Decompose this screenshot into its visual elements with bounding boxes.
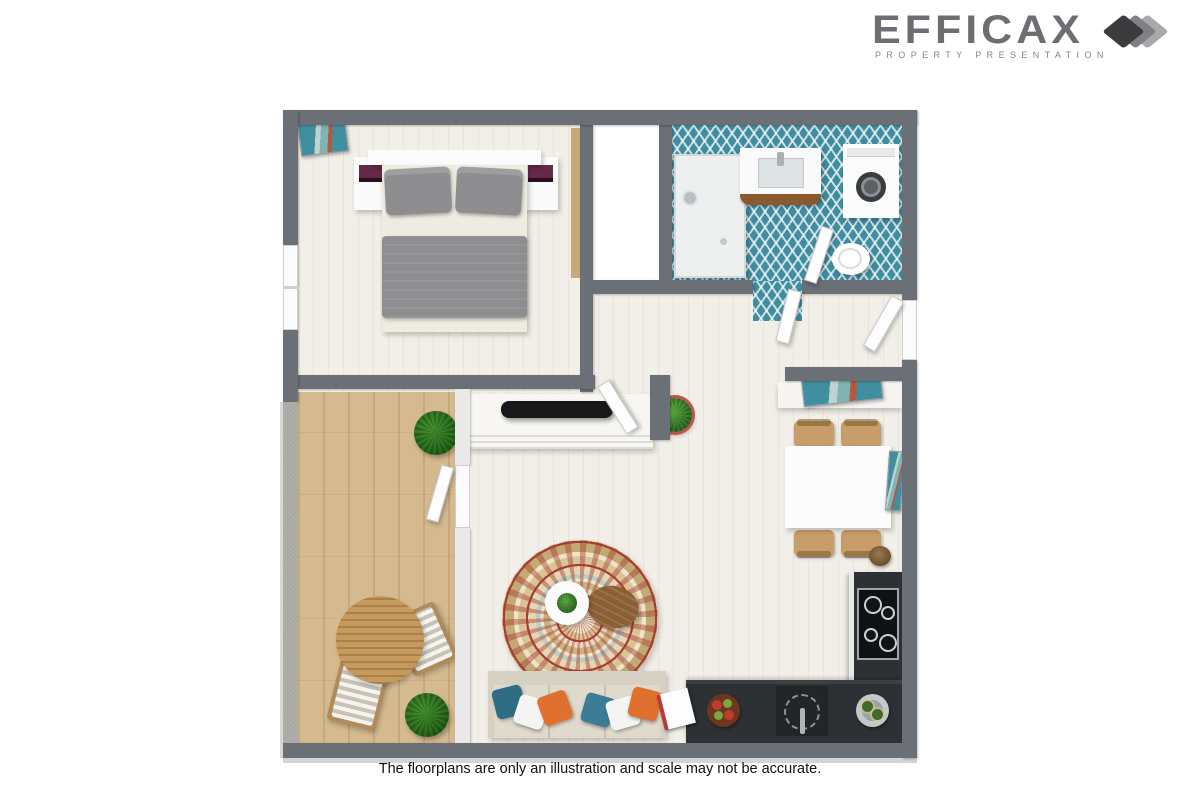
dining-chair xyxy=(794,530,834,556)
vanity-faucet xyxy=(777,152,784,166)
page: { "logo": { "brand": "EFFICAX", "tagline… xyxy=(0,0,1200,800)
bedroom-window xyxy=(283,245,298,330)
bedroom-south-wall xyxy=(298,375,595,389)
balcony-door-frame xyxy=(455,465,470,528)
balcony-living-wall-upper xyxy=(455,389,470,465)
dining-chair xyxy=(794,421,834,447)
fruit xyxy=(723,699,732,708)
balcony-living-wall-lower xyxy=(455,528,470,743)
hall-corner-wall xyxy=(650,375,670,440)
washing-machine xyxy=(843,144,899,218)
sofa xyxy=(488,671,666,738)
nightstand-drawer xyxy=(528,165,553,182)
burner xyxy=(864,596,882,614)
logo: EFFICAX PROPERTY PRESENTATION xyxy=(872,10,1172,68)
logo-tagline: PROPERTY PRESENTATION xyxy=(875,50,1109,60)
bathroom-south-wall-right xyxy=(802,280,902,294)
tv xyxy=(501,401,613,418)
cooktop xyxy=(857,588,899,660)
toilet xyxy=(832,243,870,275)
closet-right-wall xyxy=(659,125,672,280)
bed-duvet xyxy=(382,236,527,318)
closet-floor xyxy=(593,125,659,280)
shower-head-icon xyxy=(684,192,696,204)
bed-pillow-right xyxy=(455,166,523,215)
dining-nook-wall xyxy=(785,367,902,381)
outer-wall-left-balcony xyxy=(283,402,298,758)
burner xyxy=(881,606,895,620)
fruit xyxy=(712,700,722,710)
table-plant xyxy=(557,593,577,613)
dining-chair xyxy=(841,421,881,447)
balcony-table xyxy=(336,596,424,684)
bed-headboard xyxy=(368,150,541,165)
outer-wall-bottom xyxy=(283,743,917,758)
washer-control-panel xyxy=(847,148,895,157)
fruit xyxy=(724,710,734,720)
disclaimer-text: The floorplans are only an illustration … xyxy=(0,761,1200,777)
bottle xyxy=(862,701,873,712)
burner xyxy=(864,628,878,642)
vanity-wood-front xyxy=(740,194,821,205)
layered-sheets-icon xyxy=(1110,10,1172,66)
front-door-opening xyxy=(902,300,917,360)
shower xyxy=(674,154,746,278)
fruit xyxy=(714,711,723,720)
wardrobe-strip xyxy=(571,128,580,278)
bathroom-vanity xyxy=(740,148,821,196)
dining-table xyxy=(785,446,891,528)
nightstand-drawer xyxy=(359,165,384,182)
logo-brand-text: EFFICAX xyxy=(872,8,1084,53)
window-mullion xyxy=(284,286,299,289)
balcony-plant-top xyxy=(414,411,458,455)
toilet-seat xyxy=(838,248,862,269)
bathroom-south-wall-left xyxy=(593,280,753,294)
sink-faucet xyxy=(800,708,805,734)
outer-wall-right-lower xyxy=(902,360,917,758)
balcony-plant-bottom xyxy=(405,693,449,737)
fruit-bowl xyxy=(707,694,740,727)
outer-wall-right-upper xyxy=(902,110,917,300)
floorplan xyxy=(283,110,917,758)
shower-drain xyxy=(720,238,727,245)
brown-pot xyxy=(869,546,891,566)
bottle xyxy=(872,709,883,720)
closet-left-wall xyxy=(580,125,593,392)
burner xyxy=(879,634,897,652)
bed-pillow-left xyxy=(384,166,452,215)
outer-wall-top xyxy=(283,110,917,125)
kitchen-sink xyxy=(776,686,828,736)
sideboard-drawer-lines xyxy=(468,433,653,449)
washer-door xyxy=(856,172,886,202)
ice-bucket xyxy=(856,694,889,727)
bed xyxy=(382,165,527,332)
